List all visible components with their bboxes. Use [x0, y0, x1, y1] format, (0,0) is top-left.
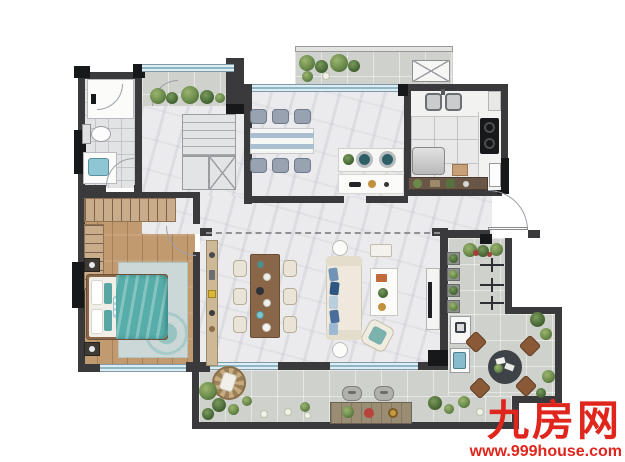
balcony-plant: [200, 90, 214, 104]
bedroom-window: [100, 364, 186, 372]
wall-segment: [505, 238, 512, 314]
bench: [370, 244, 392, 257]
shelf-item: [430, 180, 440, 187]
shelf-item: [463, 181, 469, 187]
terrace-plant: [540, 328, 552, 340]
cream-chair: [233, 288, 247, 305]
nightstand-lamp: [89, 346, 95, 352]
sofa-pillow: [328, 267, 339, 281]
bed-blanket: [116, 275, 168, 339]
terrace-plant: [199, 382, 217, 400]
bar-table-dish: [364, 408, 374, 418]
entry-door-leaf-kitchen: [489, 163, 501, 187]
cream-chair: [283, 288, 297, 305]
stairs-upper-flight: [182, 114, 236, 156]
tableware: [256, 311, 264, 319]
bar-table-dish: [388, 408, 398, 418]
sideboard: [206, 240, 218, 366]
gray-chair: [294, 109, 311, 124]
wardrobe-top: [84, 198, 176, 222]
north-balcony-window: [142, 64, 234, 72]
bar-table-plant: [342, 406, 354, 418]
terrace-plant: [202, 408, 214, 420]
red-flower: [473, 250, 479, 256]
terrace-flower: [304, 412, 311, 419]
wall-segment: [192, 368, 199, 428]
wall-segment: [528, 230, 540, 238]
table-plant: [494, 364, 503, 373]
toilet-bowl: [91, 126, 111, 142]
bed-pillow: [91, 280, 103, 305]
wall-segment: [244, 196, 344, 203]
balcony-plant: [215, 93, 225, 103]
planter-plant: [449, 270, 458, 279]
tableware: [256, 287, 264, 295]
red-flower: [487, 252, 492, 257]
counter-stool: [379, 151, 396, 168]
planter-plant: [449, 302, 458, 311]
nightstand-lamp: [89, 262, 95, 268]
structural-column: [72, 262, 84, 308]
table-runner: [250, 144, 314, 149]
terrace-plant: [228, 404, 239, 415]
floor-plan: 九房网 www.999house.com: [0, 0, 625, 462]
living-room-window-right: [330, 362, 418, 370]
wall-segment: [78, 72, 85, 372]
tv-screen: [428, 282, 432, 318]
balcony-plant: [302, 71, 313, 82]
cream-chair: [233, 260, 247, 277]
shelf-item: [349, 182, 361, 187]
structural-column: [226, 104, 244, 114]
coffee-table-plant: [378, 288, 388, 298]
sideboard-item: [209, 252, 215, 258]
balcony-plant: [150, 88, 166, 104]
terrace-plant: [530, 312, 545, 327]
counter-stool: [356, 151, 373, 168]
structural-column: [398, 84, 408, 96]
wall-segment: [134, 185, 142, 192]
wall-segment: [78, 185, 106, 192]
tableware: [257, 261, 264, 268]
tableware: [262, 323, 271, 332]
sideboard-item: [208, 290, 216, 298]
gray-chair: [250, 158, 267, 173]
gray-chair: [272, 158, 289, 173]
ac-platform-cross: [412, 60, 450, 82]
tableware: [263, 299, 271, 307]
terrace-flower: [284, 408, 292, 416]
refrigerator: [412, 147, 445, 175]
balcony-plant: [330, 54, 348, 72]
shelf-plant: [413, 179, 422, 188]
sofa-pillow: [329, 282, 339, 296]
shelf-item: [446, 179, 455, 188]
sideboard-item: [209, 326, 215, 332]
drying-rack: [491, 258, 493, 272]
kitchen-sink: [445, 93, 462, 111]
structural-column: [428, 350, 448, 366]
shower-head: [91, 94, 96, 104]
terrace-plant: [542, 370, 555, 383]
sideboard-item: [209, 270, 215, 280]
stairs-landing: [182, 156, 209, 190]
tableware: [263, 273, 271, 281]
wall-segment: [278, 362, 330, 370]
sofa-pillow: [329, 310, 340, 324]
stairs-break-line: [209, 156, 236, 190]
terrace-plant: [458, 396, 470, 408]
gray-chair: [250, 109, 267, 124]
sofa-pillow: [329, 296, 338, 309]
balcony-parapet: [295, 46, 453, 52]
wall-segment: [193, 252, 200, 372]
sofa-armrest: [326, 256, 362, 266]
watermark: 九房网 www.999house.com: [470, 400, 622, 460]
wall-segment: [193, 198, 200, 224]
stove-burner: [484, 122, 495, 133]
toilet-tank: [82, 124, 91, 144]
wall-segment: [366, 196, 408, 203]
washing-machine-drum: [455, 322, 466, 333]
cream-chair: [283, 260, 297, 277]
bed-pillow: [91, 309, 103, 334]
balcony-plant: [348, 60, 360, 72]
terrace-plant: [300, 402, 310, 412]
terrace-flower: [260, 410, 268, 418]
structural-column: [74, 66, 90, 78]
terrace-plant: [212, 398, 226, 412]
sink-faucet: [441, 89, 445, 95]
gray-chair: [272, 109, 289, 124]
gray-chair: [294, 158, 311, 173]
balcony-flower: [322, 72, 330, 80]
terrace-plant: [428, 396, 442, 410]
coffee-table-item: [376, 274, 387, 282]
entry-door-swing: [488, 190, 528, 230]
shelf-item: [384, 182, 389, 187]
drying-rack: [491, 296, 493, 310]
terrace-plant: [242, 396, 252, 406]
cream-chair: [233, 316, 247, 333]
planter-plant: [449, 286, 458, 295]
balcony-plant: [181, 86, 199, 104]
kitchen-wall-unit: [488, 91, 501, 111]
wall-segment: [555, 307, 562, 403]
wall-segment: [408, 84, 508, 91]
bed-accent-pillow: [104, 310, 112, 331]
wall-segment: [78, 364, 100, 372]
side-table: [332, 342, 348, 358]
sideboard-item: [209, 310, 215, 316]
terrace-plant: [444, 404, 454, 414]
dining-room-window: [252, 84, 398, 92]
kitchen-sink: [425, 93, 442, 111]
planter-plant: [449, 254, 458, 263]
vanity-sink: [88, 158, 109, 176]
bar-stool-slot: [348, 391, 356, 394]
balcony-plant: [299, 55, 315, 71]
watermark-site: www.999house.com: [470, 444, 622, 460]
entry-door-leaf: [488, 227, 528, 230]
shelf-item: [368, 180, 376, 188]
outdoor-sink-basin: [453, 352, 466, 369]
side-table: [332, 240, 348, 256]
structural-column: [480, 234, 492, 244]
cutting-board: [452, 164, 468, 176]
long-table: [250, 128, 314, 154]
bar-stool-slot: [380, 391, 388, 394]
sofa-pillow: [329, 323, 338, 335]
watermark-brand: 九房网: [470, 400, 622, 442]
counter-plant: [343, 154, 354, 165]
drying-rack: [491, 278, 493, 292]
cream-chair: [283, 316, 297, 333]
balcony-plant: [166, 92, 178, 104]
bed-accent-pillow: [104, 283, 112, 304]
table-runner: [250, 133, 314, 138]
beam-dashed-line: [206, 232, 440, 234]
coffee-table-item: [378, 303, 386, 311]
stove-burner: [484, 138, 495, 149]
